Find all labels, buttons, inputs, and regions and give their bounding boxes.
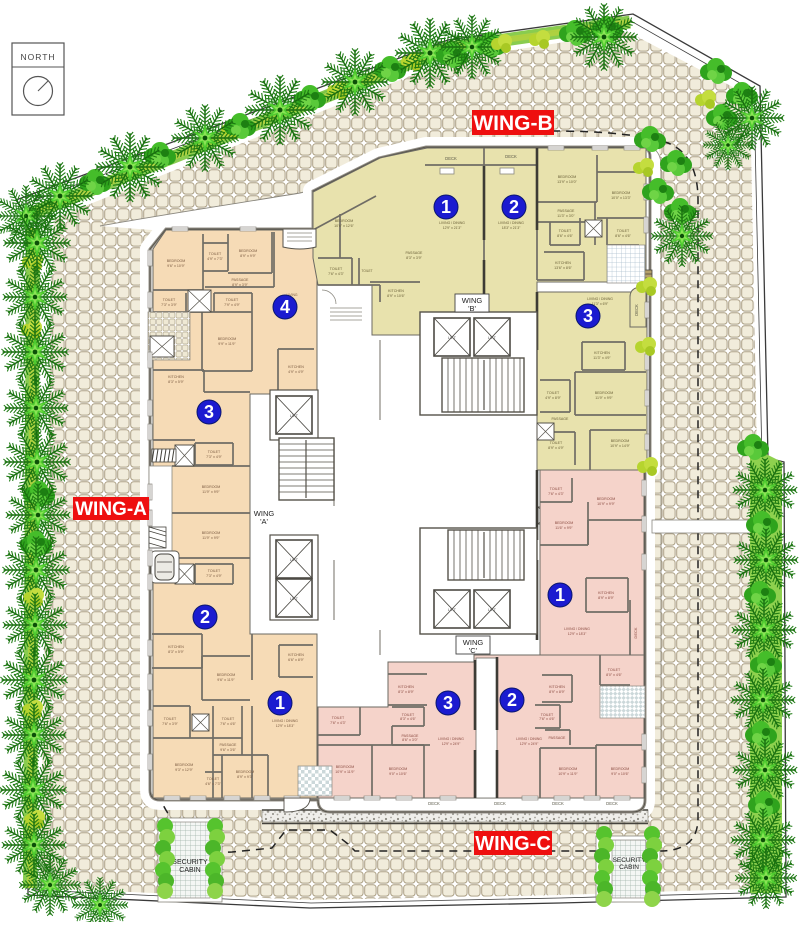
svg-text:4: 4 — [280, 297, 290, 317]
svg-text:BEDROOM: BEDROOM — [597, 497, 616, 501]
svg-text:12'9" x 24'9": 12'9" x 24'9" — [442, 742, 461, 746]
svg-text:9'6" x 11'9": 9'6" x 11'9" — [217, 678, 235, 682]
svg-text:12'9" x 24'9": 12'9" x 24'9" — [520, 742, 539, 746]
svg-text:LIVING / DINING: LIVING / DINING — [438, 737, 464, 741]
svg-text:TOILET: TOILET — [209, 252, 222, 256]
svg-text:10'0" x 13'3": 10'0" x 13'3" — [611, 196, 631, 200]
svg-text:BEDROOM: BEDROOM — [555, 521, 574, 525]
svg-text:TOILET: TOILET — [361, 269, 372, 273]
svg-text:KITCHEN: KITCHEN — [168, 375, 184, 379]
svg-text:LIVING / DINING: LIVING / DINING — [564, 627, 590, 631]
svg-text:SECURITY: SECURITY — [613, 857, 647, 864]
svg-text:3: 3 — [204, 402, 214, 422]
svg-text:SECURITY: SECURITY — [172, 859, 208, 866]
svg-text:1: 1 — [441, 197, 451, 217]
svg-text:BEDROOM: BEDROOM — [611, 439, 630, 443]
svg-text:CABIN: CABIN — [179, 867, 200, 874]
svg-text:2: 2 — [507, 690, 517, 710]
svg-text:DECK: DECK — [633, 627, 638, 638]
svg-text:'B': 'B' — [468, 304, 476, 313]
svg-text:8'9" x 8'9": 8'9" x 8'9" — [549, 690, 565, 694]
svg-text:TOILET: TOILET — [330, 267, 343, 271]
svg-text:4'9" x 8'9": 4'9" x 8'9" — [545, 396, 561, 400]
svg-text:TOILET: TOILET — [332, 716, 345, 720]
svg-text:8'3" x 5'9": 8'3" x 5'9" — [168, 380, 184, 384]
svg-text:9'3" x 12'9": 9'3" x 12'9" — [175, 768, 193, 772]
svg-text:11'6" x 9'9": 11'6" x 9'9" — [555, 526, 573, 530]
svg-text:KITCHEN: KITCHEN — [398, 685, 414, 689]
svg-text:BEDROOM: BEDROOM — [236, 770, 255, 774]
svg-text:KITCHEN: KITCHEN — [549, 685, 565, 689]
svg-text:PASSAGE: PASSAGE — [558, 209, 576, 213]
svg-text:7'6" x 4'6": 7'6" x 4'6" — [539, 717, 555, 721]
svg-text:WING-A: WING-A — [75, 499, 147, 520]
svg-text:2: 2 — [509, 197, 519, 217]
svg-text:7'3" x 4'9": 7'3" x 4'9" — [206, 455, 222, 459]
svg-text:9'6" x 10'9": 9'6" x 10'9" — [167, 264, 185, 268]
svg-text:11'9" x 9'9": 11'9" x 9'9" — [202, 536, 220, 540]
svg-text:7'6" x 4'3": 7'6" x 4'3" — [548, 492, 564, 496]
svg-text:BEDROOM: BEDROOM — [175, 763, 194, 767]
svg-text:BEDROOM: BEDROOM — [167, 259, 186, 263]
svg-text:KITCHEN: KITCHEN — [288, 653, 304, 657]
svg-text:BEDROOM: BEDROOM — [612, 191, 631, 195]
svg-text:LIVING / DINING: LIVING / DINING — [587, 297, 613, 301]
svg-text:LIVING / DINING: LIVING / DINING — [498, 221, 524, 225]
svg-text:6'6" x 8'9": 6'6" x 8'9" — [288, 658, 304, 662]
svg-text:1: 1 — [555, 585, 565, 605]
svg-text:KITCHEN: KITCHEN — [388, 289, 404, 293]
svg-text:PASSAGE: PASSAGE — [232, 278, 250, 282]
svg-text:BEDROOM: BEDROOM — [217, 673, 236, 677]
svg-text:7'6" x 4'3": 7'6" x 4'3" — [330, 721, 346, 725]
svg-text:DECK: DECK — [505, 154, 517, 159]
svg-text:LIVING / DINING: LIVING / DINING — [439, 221, 465, 225]
svg-text:12'9" x 18'3": 12'9" x 18'3" — [568, 632, 587, 636]
svg-text:DECK: DECK — [634, 304, 639, 316]
svg-text:8'3" x 5'9": 8'3" x 5'9" — [168, 650, 184, 654]
svg-text:8'6" x 4'6": 8'6" x 4'6" — [615, 234, 631, 238]
svg-text:TOILET: TOILET — [608, 668, 621, 672]
svg-text:10'9" x 11'9": 10'9" x 11'9" — [558, 772, 578, 776]
svg-text:12'9" x 18'3": 12'9" x 18'3" — [276, 724, 295, 728]
svg-text:1: 1 — [275, 693, 285, 713]
svg-text:8'3" x 4'6": 8'3" x 4'6" — [400, 717, 416, 721]
svg-text:10'9" x 9'9": 10'9" x 9'9" — [597, 502, 615, 506]
svg-text:TOILET: TOILET — [163, 298, 176, 302]
svg-text:8'0" x 4'6": 8'0" x 4'6" — [606, 673, 622, 677]
svg-text:9'0" x 10'6": 9'0" x 10'6" — [389, 772, 407, 776]
svg-text:'C': 'C' — [469, 646, 478, 655]
svg-text:BEDROOM: BEDROOM — [335, 219, 354, 223]
svg-text:BEDROOM: BEDROOM — [336, 765, 355, 769]
svg-text:8'9" x 9'9": 8'9" x 9'9" — [240, 254, 256, 258]
svg-text:NORTH: NORTH — [20, 52, 55, 62]
svg-text:CABIN: CABIN — [619, 864, 639, 871]
svg-text:LIVING / DINING: LIVING / DINING — [272, 719, 298, 723]
svg-text:DECK: DECK — [552, 801, 564, 806]
svg-text:KITCHEN: KITCHEN — [555, 261, 571, 265]
svg-text:8'9" x 3'9": 8'9" x 3'9" — [232, 283, 248, 287]
svg-text:WING-B: WING-B — [473, 112, 552, 135]
svg-text:7'6" x 4'6": 7'6" x 4'6" — [220, 722, 236, 726]
svg-text:10'6" x 12'6": 10'6" x 12'6" — [334, 224, 354, 228]
svg-text:BEDROOM: BEDROOM — [389, 767, 408, 771]
svg-text:TOILET: TOILET — [222, 717, 235, 721]
svg-text:KITCHEN: KITCHEN — [168, 645, 184, 649]
svg-text:9'9" x 11'9": 9'9" x 11'9" — [218, 342, 236, 346]
svg-text:BEDROOM: BEDROOM — [202, 531, 221, 535]
svg-text:BEDROOM: BEDROOM — [558, 175, 577, 179]
svg-text:TOILET: TOILET — [550, 441, 563, 445]
svg-text:PASSAGE: PASSAGE — [552, 417, 570, 421]
svg-text:TOILET: TOILET — [207, 777, 220, 781]
svg-text:KITCHEN: KITCHEN — [288, 365, 304, 369]
svg-text:7'3" x 3'9": 7'3" x 3'9" — [161, 303, 177, 307]
svg-text:TOILET: TOILET — [208, 450, 221, 454]
svg-text:DECK: DECK — [428, 801, 440, 806]
svg-text:BEDROOM: BEDROOM — [595, 391, 614, 395]
svg-text:8'6" x 3'0": 8'6" x 3'0" — [402, 738, 418, 742]
svg-text:PASSAGE: PASSAGE — [220, 743, 238, 747]
svg-text:TOILET: TOILET — [559, 229, 572, 233]
svg-text:9'6" x 3'6": 9'6" x 3'6" — [220, 748, 236, 752]
svg-text:12'9" x 21'3": 12'9" x 21'3" — [443, 226, 462, 230]
svg-text:8'3" x 3'9": 8'3" x 3'9" — [406, 256, 422, 260]
svg-text:2: 2 — [200, 607, 210, 627]
svg-text:4'9" x 7'3": 4'9" x 7'3" — [207, 257, 223, 261]
svg-text:8'9" x 10'6": 8'9" x 10'6" — [387, 294, 405, 298]
svg-text:BEDROOM: BEDROOM — [218, 337, 237, 341]
svg-text:7'3" x 4'9": 7'3" x 4'9" — [206, 574, 222, 578]
svg-text:4'6" x 7'3": 4'6" x 7'3" — [205, 782, 221, 786]
svg-text:8'9" x 4'9": 8'9" x 4'9" — [548, 446, 564, 450]
svg-text:10'9" x 11'9": 10'9" x 11'9" — [335, 770, 355, 774]
svg-text:3: 3 — [443, 693, 453, 713]
svg-text:9'0" x 10'6": 9'0" x 10'6" — [611, 772, 629, 776]
svg-text:TOILET: TOILET — [226, 298, 239, 302]
svg-text:BEDROOM: BEDROOM — [559, 767, 578, 771]
svg-text:TOILET: TOILET — [617, 229, 630, 233]
svg-text:11'9" x 9'9": 11'9" x 9'9" — [202, 490, 220, 494]
svg-text:BEDROOM: BEDROOM — [239, 249, 258, 253]
svg-text:8'3" x 8'9": 8'3" x 8'9" — [398, 690, 414, 694]
svg-text:7'9" x 4'9": 7'9" x 4'9" — [224, 303, 240, 307]
svg-text:13'9" x 10'0": 13'9" x 10'0" — [557, 180, 577, 184]
svg-text:8'6" x 4'6": 8'6" x 4'6" — [557, 234, 573, 238]
svg-text:DECK: DECK — [445, 156, 457, 161]
svg-text:BEDROOM: BEDROOM — [611, 767, 630, 771]
svg-text:13'6" x 8'6": 13'6" x 8'6" — [554, 266, 572, 270]
svg-text:7'6" x 4'3": 7'6" x 4'3" — [328, 272, 344, 276]
svg-text:LIVING / DINING: LIVING / DINING — [516, 737, 542, 741]
svg-text:10'9" x 14'9": 10'9" x 14'9" — [610, 444, 630, 448]
svg-text:BEDROOM: BEDROOM — [202, 485, 221, 489]
svg-text:TOILET: TOILET — [547, 391, 560, 395]
svg-text:8'9" x 9'3": 8'9" x 9'3" — [237, 775, 253, 779]
svg-text:3: 3 — [583, 306, 593, 326]
svg-text:TOILET: TOILET — [550, 487, 563, 491]
svg-text:18'3" x 21'3": 18'3" x 21'3" — [502, 226, 521, 230]
svg-text:11'3" x 3'0": 11'3" x 3'0" — [557, 214, 575, 218]
svg-text:TOILET: TOILET — [164, 717, 177, 721]
svg-text:'A': 'A' — [260, 517, 268, 526]
svg-text:DECK: DECK — [494, 801, 506, 806]
svg-text:PASSAGE: PASSAGE — [549, 736, 567, 740]
svg-text:DECK: DECK — [606, 801, 618, 806]
svg-text:11'9" x 9'9": 11'9" x 9'9" — [595, 396, 613, 400]
svg-text:WING-C: WING-C — [475, 833, 551, 855]
svg-text:KITCHEN: KITCHEN — [598, 591, 614, 595]
svg-text:KITCHEN: KITCHEN — [594, 351, 610, 355]
svg-text:11'3" x 4'9": 11'3" x 4'9" — [593, 356, 611, 360]
svg-text:TOILET: TOILET — [208, 569, 221, 573]
svg-text:8'9" x 8'9": 8'9" x 8'9" — [598, 596, 614, 600]
svg-text:7'6" x 3'9": 7'6" x 3'9" — [162, 722, 178, 726]
svg-text:PASSAGE: PASSAGE — [406, 251, 424, 255]
svg-text:4'9" x 4'9": 4'9" x 4'9" — [288, 370, 304, 374]
